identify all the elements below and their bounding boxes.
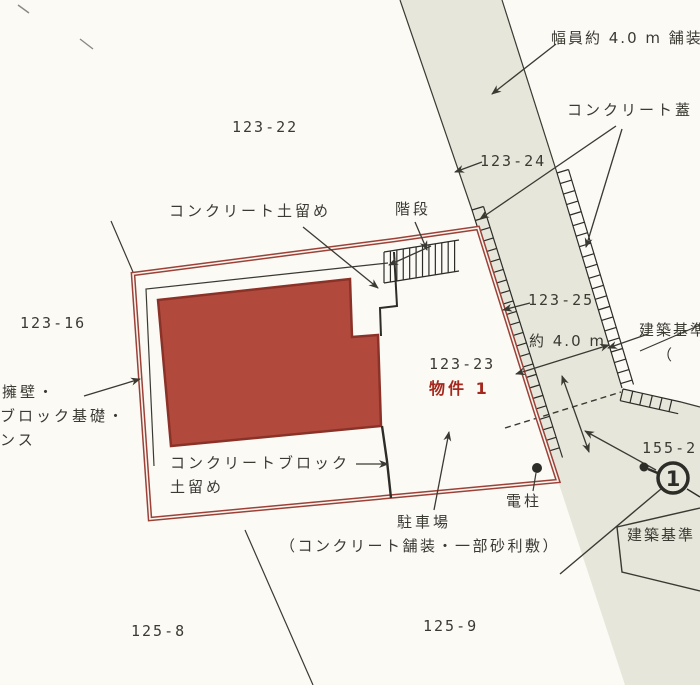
utility-pole-label: 電柱 <box>506 493 542 510</box>
retaining-note-line3: ンス <box>0 432 36 449</box>
parcel-label-125-9: 125-9 <box>423 618 478 635</box>
concrete-lid-label: コンクリート蓋 <box>567 102 693 119</box>
parking-note-label: （コンクリート舗装・一部砂利敷） <box>280 538 560 555</box>
corner-tick-marks <box>18 5 93 49</box>
parcel-label-123-24: 123-24 <box>480 153 546 170</box>
svg-text:1: 1 <box>666 467 681 491</box>
concrete-retaining-step-wall <box>380 252 397 336</box>
concrete-block-label-line2: 土留め <box>170 479 224 496</box>
parcel-label-123-22: 123-22 <box>232 119 298 136</box>
parcel-label-155-2: 155-2 <box>642 440 697 457</box>
parcel-label-125-8: 125-8 <box>131 623 186 640</box>
concrete-block-retaining-wall <box>382 426 391 498</box>
site-plan-drawing: 1 幅員約 4.0 m 舗装 コンクリート蓋 123-22 123-24 コンク… <box>0 0 700 685</box>
building-standard-right-label: 建築基準 <box>639 322 700 339</box>
retaining-note-line2: ブロック基礎・ <box>0 408 126 425</box>
parcel-label-123-25: 123-25 <box>528 292 594 309</box>
concrete-block-label-line1: コンクリートブロック <box>170 455 350 472</box>
stairs-label: 階段 <box>395 201 431 218</box>
retaining-note-line1: 擁壁・ <box>2 384 56 401</box>
concrete-retaining-label: コンクリート土留め <box>169 203 331 220</box>
building-footprint <box>158 279 381 446</box>
approx-width-label: 約 4.0 m <box>529 333 606 350</box>
building-standard-right-paren: （ <box>657 347 675 364</box>
parcel-label-123-23: 123-23 <box>429 356 495 373</box>
property-label: 物件 1 <box>429 380 490 398</box>
parking-label: 駐車場 <box>397 514 451 531</box>
utility-pole-marker <box>532 463 542 491</box>
parcel-label-123-16: 123-16 <box>20 315 86 332</box>
building-standard-bottom-label: 建築基準 <box>627 527 695 544</box>
road-width-label: 幅員約 4.0 m 舗装 <box>551 30 700 47</box>
